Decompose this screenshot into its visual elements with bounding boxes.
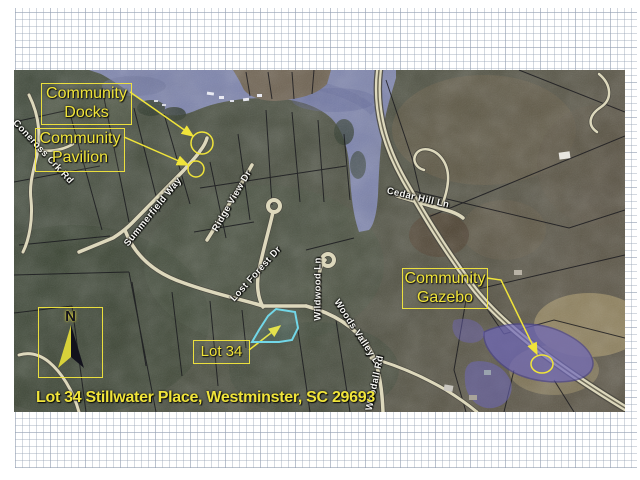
annotation-box-community-gazebo: Community Gazebo bbox=[402, 268, 488, 309]
community-docks-line2: Docks bbox=[42, 103, 131, 122]
community-gazebo-line2: Gazebo bbox=[403, 288, 487, 307]
road-label-wildwood-ln: Wildwood Ln bbox=[313, 257, 324, 320]
community-pavilion-line1: Community bbox=[36, 129, 124, 148]
community-docks-line1: Community bbox=[42, 84, 131, 103]
community-gazebo-line1: Community bbox=[403, 269, 487, 288]
compass-arrow-icon bbox=[55, 325, 87, 371]
annotation-box-community-pavilion: Community Pavilion bbox=[35, 128, 125, 172]
compass-n-label: N bbox=[39, 309, 102, 325]
annotation-box-lot-34: Lot 34 bbox=[193, 340, 250, 364]
aerial-map: Coneross Crk Rd Summerfield Way Ridge Vi… bbox=[14, 70, 625, 412]
lot-34-label: Lot 34 bbox=[201, 343, 243, 360]
community-pavilion-line2: Pavilion bbox=[36, 148, 124, 167]
address-caption: Lot 34 Stillwater Place, Westminster, SC… bbox=[36, 389, 375, 407]
north-compass: N bbox=[38, 307, 103, 378]
annotation-box-community-docks: Community Docks bbox=[41, 83, 132, 125]
